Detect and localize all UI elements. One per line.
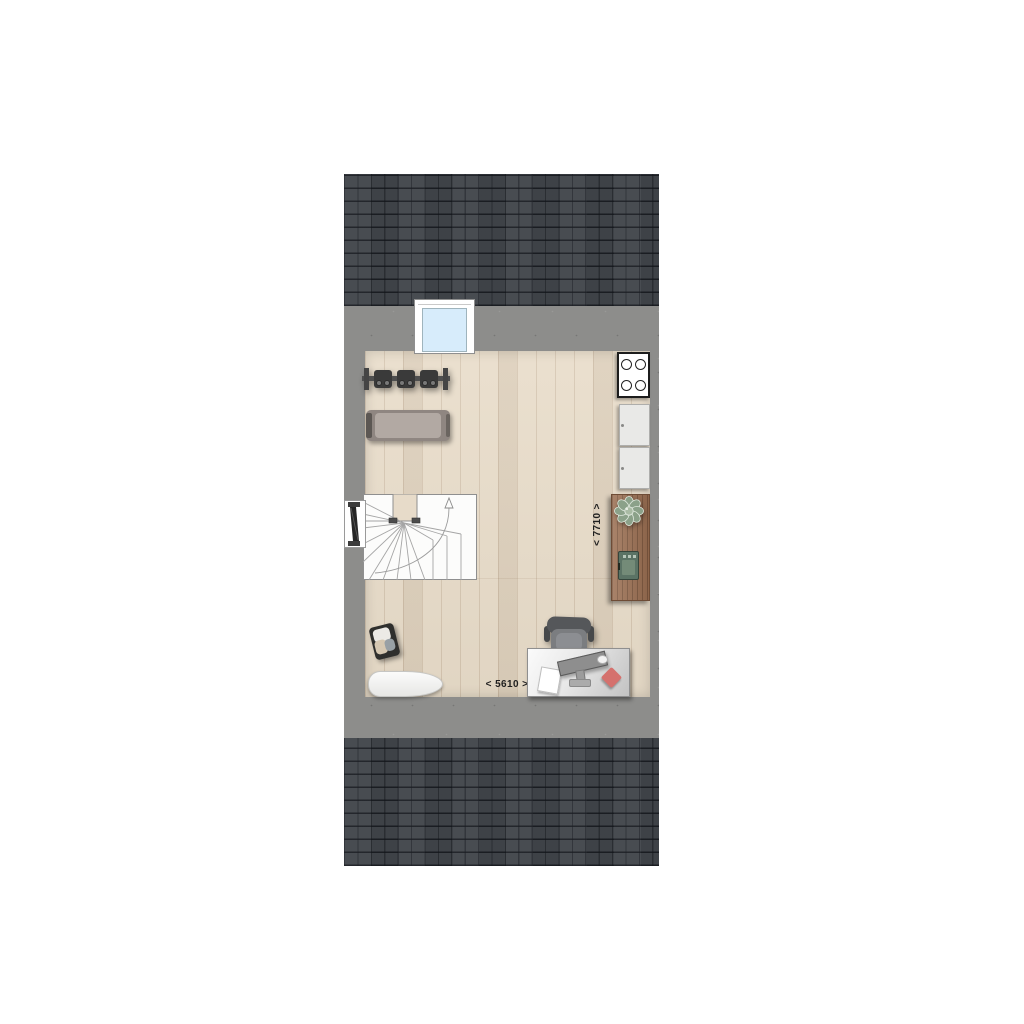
hook-knob: [399, 380, 405, 386]
mouse-icon: [597, 655, 608, 664]
coat-rack: [362, 368, 450, 392]
wall-door: [344, 500, 366, 548]
kitchen-cabinet: [619, 404, 650, 446]
page-background: { "floorplan": { "dimension_depth_label"…: [0, 0, 1024, 1024]
coat-rack-post: [443, 368, 448, 390]
plant-icon: [613, 495, 645, 527]
hook-knob: [376, 380, 382, 386]
green-device-icon: [618, 551, 639, 580]
coat-hook: [374, 370, 392, 388]
bench: [366, 410, 450, 441]
device-key: [623, 555, 626, 558]
roof-tiles-top: [344, 174, 659, 306]
stove-burner: [621, 380, 632, 391]
hook-knob: [407, 380, 413, 386]
bench-pad: [375, 413, 441, 438]
device-key: [633, 555, 636, 558]
monitor-base: [569, 679, 591, 687]
stove-burner: [635, 359, 646, 370]
window-glass: [422, 308, 467, 352]
cabinet-handle: [621, 424, 624, 427]
red-notepad-icon: [601, 667, 622, 688]
floorplan-canvas: < 7710 > < 5610 >: [344, 174, 659, 866]
stove-burner: [621, 359, 632, 370]
coat-rack-post: [364, 368, 369, 390]
roof-tiles-bottom: [344, 738, 659, 866]
cabinet-handle: [621, 467, 624, 470]
coat-hook: [420, 370, 438, 388]
dimension-width: < 5610 >: [482, 679, 532, 690]
stove-icon: [617, 352, 650, 398]
dimension-width-label: < 5610 >: [486, 679, 529, 690]
ironing-board: [368, 671, 443, 697]
coat-hook: [397, 370, 415, 388]
basket-contents: [384, 638, 397, 652]
hook-knob: [430, 380, 436, 386]
winder-stairs: [363, 494, 477, 580]
kitchen-cabinet: [619, 447, 650, 489]
bench-cap: [446, 414, 450, 437]
hook-knob: [422, 380, 428, 386]
desk: [527, 648, 630, 697]
window-frame-line: [418, 304, 471, 305]
dimension-depth-label: < 7710 >: [592, 503, 603, 546]
dimension-depth: < 7710 >: [588, 502, 606, 546]
device-panel: [622, 560, 635, 575]
hook-knob: [384, 380, 390, 386]
device-latch: [618, 563, 620, 570]
bench-cap: [366, 413, 372, 438]
window: [414, 299, 475, 354]
stove-burner: [635, 380, 646, 391]
device-key: [628, 555, 631, 558]
